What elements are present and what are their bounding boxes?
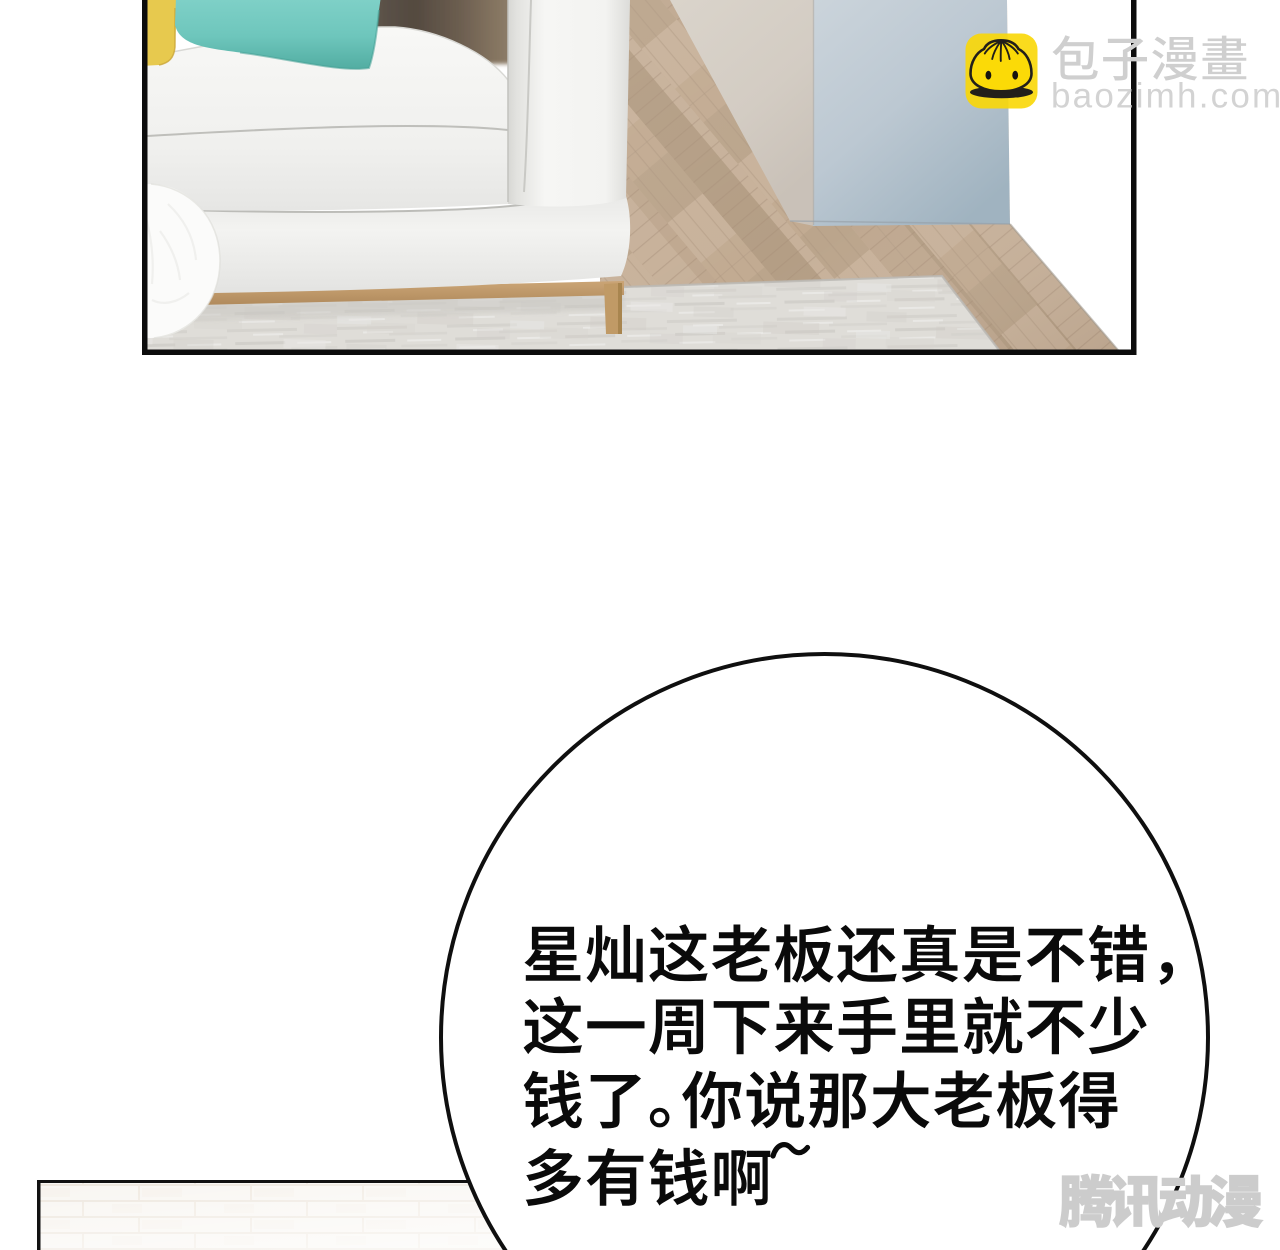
- svg-text:baozimh.com: baozimh.com: [1051, 77, 1280, 116]
